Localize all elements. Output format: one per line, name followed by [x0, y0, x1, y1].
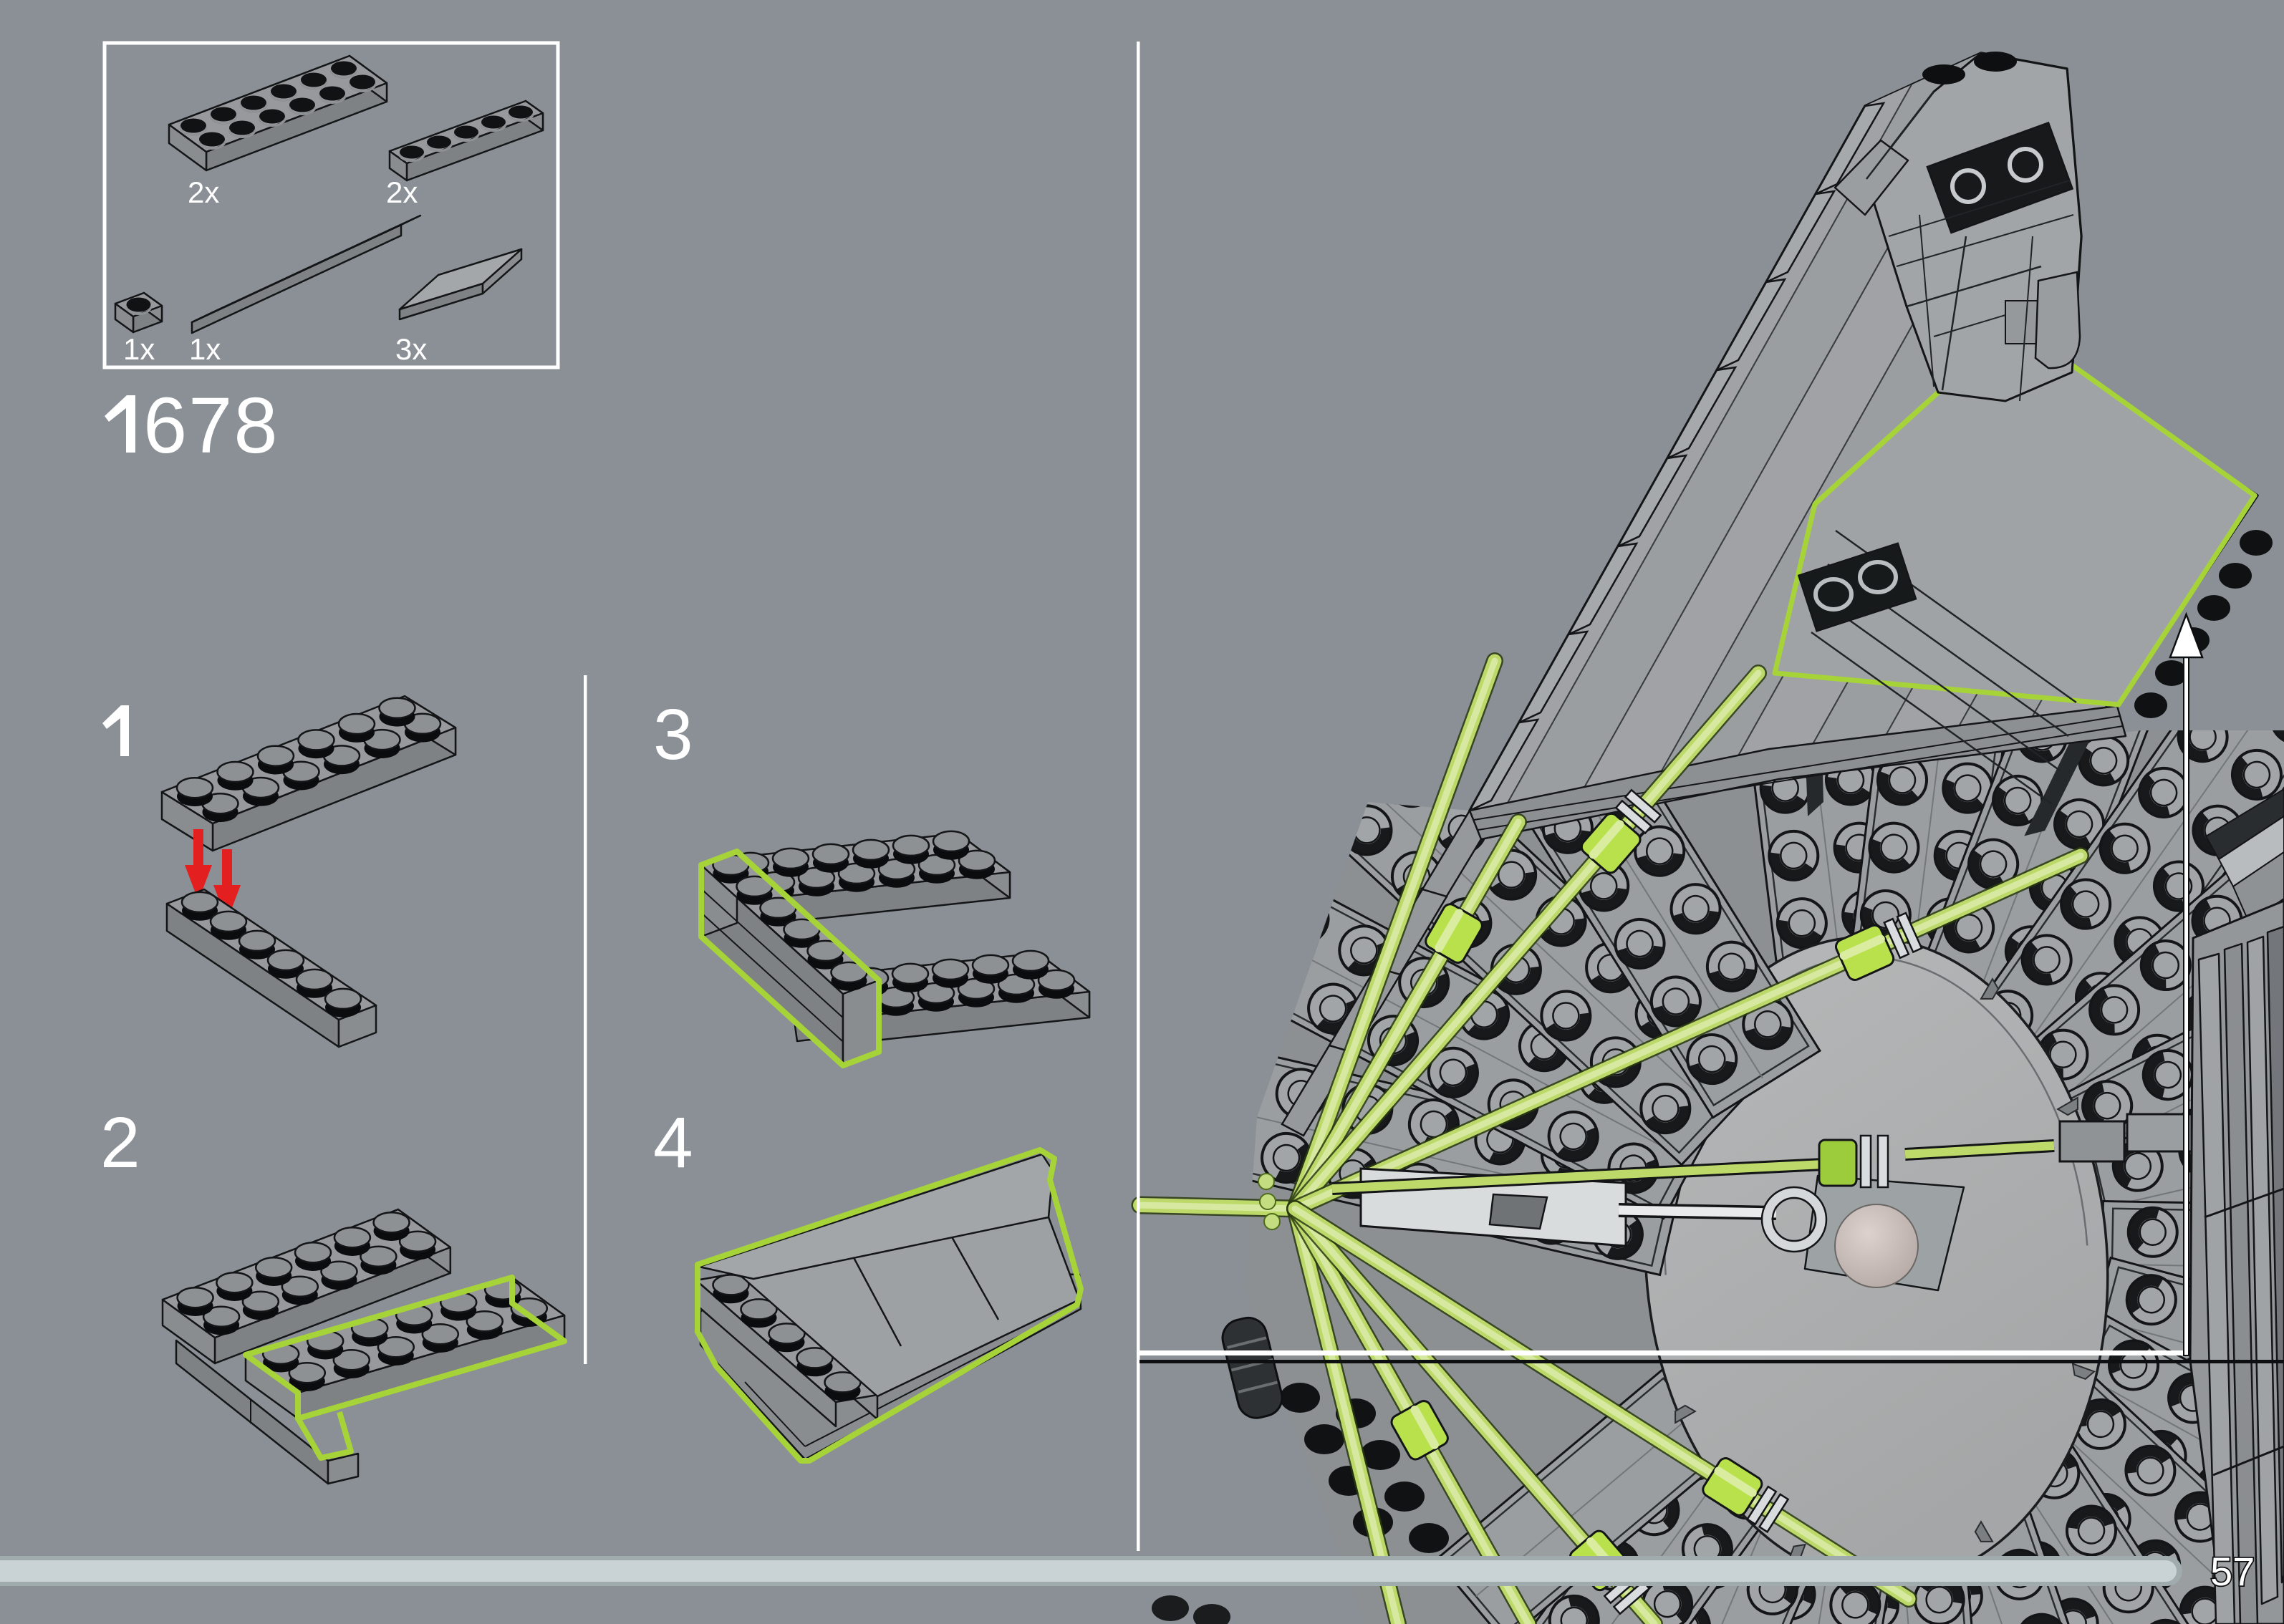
svg-text:1x: 1x	[189, 332, 221, 366]
svg-text:57: 57	[2210, 1549, 2255, 1594]
svg-text:3x: 3x	[395, 332, 427, 366]
svg-text:2x: 2x	[386, 175, 418, 209]
svg-text:1x: 1x	[123, 332, 155, 366]
svg-text:2: 2	[100, 1103, 140, 1183]
svg-text:678: 678	[143, 382, 279, 470]
svg-text:3: 3	[653, 695, 693, 775]
svg-text:2x: 2x	[188, 175, 219, 209]
svg-text:4: 4	[653, 1103, 693, 1183]
